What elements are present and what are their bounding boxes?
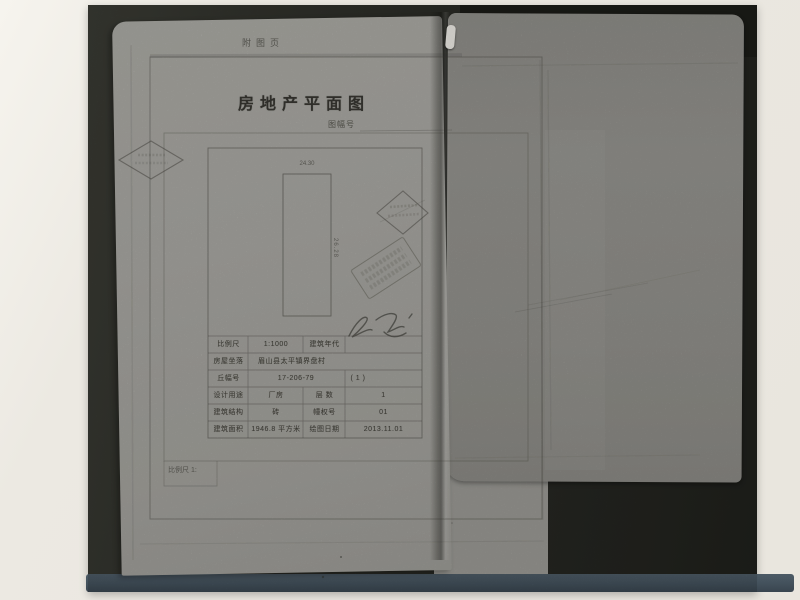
table-cell-value: 1946.8 平方米 <box>249 421 303 438</box>
table-cell-label: 绘图日期 <box>304 421 345 438</box>
table-cell-value: 1:1000 <box>249 336 303 353</box>
plan-height-dimension: 26.28 <box>332 238 338 258</box>
table-cell-value: 2013.11.01 <box>346 421 421 438</box>
document-title: 房地产平面图 <box>238 90 370 114</box>
table-cell-label: 比例尺 <box>209 336 248 353</box>
table-cell-value <box>346 336 421 353</box>
table-cell-value: 1 <box>346 387 421 404</box>
table-cell-value: 砖 <box>249 404 303 421</box>
table-cell-label: 设计用途 <box>209 387 248 404</box>
table-cell-label: 丘幅号 <box>209 370 248 387</box>
table-cell-label: 层 数 <box>304 387 345 404</box>
table-cell-value: 厂房 <box>249 387 303 404</box>
table-cell-value: ( 1 ) <box>336 370 380 387</box>
table-cell-label: 建筑结构 <box>209 404 248 421</box>
document-content: 附图页 房地产平面图 图幅号 24.30 26.28 比例尺 1: 比例尺 1:… <box>0 0 800 600</box>
table-cell-label: 建筑面积 <box>209 421 248 438</box>
plan-width-dimension: 24.30 <box>283 161 331 167</box>
table-cell-value: 17-206-79 <box>249 370 343 387</box>
map-sheet-number-label: 图幅号 <box>328 119 355 130</box>
table-cell-label: 房屋坐落 <box>209 353 248 370</box>
table-cell-label: 建筑年代 <box>304 336 345 353</box>
table-cell-value: 眉山县太平镇界盘村 <box>250 353 430 370</box>
table-cell-value: 01 <box>346 404 421 421</box>
page-label: 附图页 <box>242 36 284 49</box>
footer-scale-label: 比例尺 1: <box>168 465 197 475</box>
table-cell-label: 幢权号 <box>304 404 345 421</box>
photo-stage: 附图页 房地产平面图 图幅号 24.30 26.28 比例尺 1: 比例尺 1:… <box>0 0 800 600</box>
